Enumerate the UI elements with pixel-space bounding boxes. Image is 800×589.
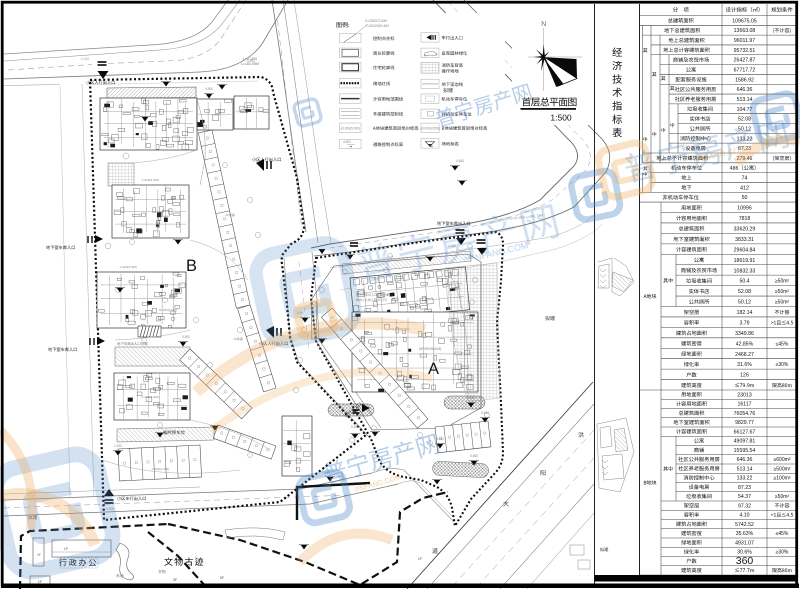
svg-text:5.480: 5.480	[481, 411, 489, 415]
svg-text:15595.54: 15595.54	[734, 448, 756, 454]
svg-text:≥600m²: ≥600m²	[774, 457, 791, 463]
svg-text:4.500: 4.500	[205, 87, 213, 91]
svg-text:52.08: 52.08	[738, 117, 751, 123]
svg-text:2468.27: 2468.27	[735, 352, 754, 358]
svg-text:1586.92: 1586.92	[735, 77, 754, 83]
svg-text:-1.050(3.450): -1.050(3.450)	[151, 467, 169, 471]
svg-text:5.480: 5.480	[467, 396, 475, 400]
svg-text:50: 50	[742, 195, 748, 201]
svg-text:≥500m²: ≥500m²	[774, 466, 791, 472]
svg-text:52.08: 52.08	[738, 289, 751, 295]
svg-text:-1.200(3.300): -1.200(3.300)	[141, 178, 159, 182]
svg-text:26427.87: 26427.87	[734, 58, 756, 64]
svg-text:≥50m²: ≥50m²	[775, 279, 789, 285]
svg-text:±0.000(5.000): ±0.000(5.000)	[340, 126, 360, 130]
svg-text:5.480: 5.480	[470, 454, 478, 458]
svg-text:7818: 7818	[739, 216, 751, 222]
svg-text:23013: 23013	[737, 392, 752, 398]
svg-text:1F商铺: 1F商铺	[233, 336, 243, 341]
svg-text:10996: 10996	[737, 206, 752, 212]
svg-text:±0.000(4.550): ±0.000(4.550)	[420, 126, 440, 130]
svg-text:Y=2842049.482: Y=2842049.482	[365, 24, 389, 28]
svg-text:±0.000(4.550): ±0.000(4.550)	[159, 308, 178, 312]
svg-text:412: 412	[740, 185, 749, 191]
svg-text:4.500: 4.500	[343, 140, 351, 144]
svg-text:33620.29: 33620.29	[734, 227, 756, 233]
svg-text:513.14: 513.14	[737, 97, 753, 103]
svg-text:513.14: 513.14	[737, 466, 753, 472]
svg-text:133.22: 133.22	[737, 476, 753, 482]
svg-text:74: 74	[742, 176, 748, 182]
svg-text:≥50m²: ≥50m²	[775, 300, 789, 306]
svg-text:X=298373.849: X=298373.849	[365, 19, 387, 23]
svg-text:50.12: 50.12	[738, 300, 751, 306]
svg-text:≥30%: ≥30%	[776, 550, 789, 556]
svg-text:76054.76: 76054.76	[734, 411, 756, 417]
svg-text:29604.84: 29604.84	[734, 247, 756, 253]
svg-text:5.300: 5.300	[351, 425, 359, 429]
svg-text:96011.97: 96011.97	[734, 38, 755, 44]
svg-text:95732.51: 95732.51	[734, 48, 756, 54]
svg-text:646.36: 646.36	[737, 457, 753, 463]
svg-text:50.4: 50.4	[739, 279, 749, 285]
svg-text:1.200: 1.200	[114, 444, 122, 448]
svg-text:35.63%: 35.63%	[736, 531, 754, 537]
svg-text:4.500: 4.500	[456, 159, 464, 163]
svg-text:5.300: 5.300	[182, 335, 190, 339]
svg-text:9829.77: 9829.77	[735, 420, 754, 426]
svg-text:≥50m²: ≥50m²	[775, 494, 789, 500]
svg-text:42.85%: 42.85%	[736, 341, 754, 347]
svg-text:126: 126	[740, 373, 749, 379]
svg-text:16117: 16117	[737, 402, 751, 408]
svg-text:97.32: 97.32	[738, 503, 751, 509]
svg-text:3.79: 3.79	[739, 320, 749, 326]
svg-text:1F商铺: 1F商铺	[225, 212, 235, 217]
svg-text:67717.72: 67717.72	[734, 68, 756, 74]
svg-text:182.14: 182.14	[737, 310, 753, 316]
svg-text:109675.05: 109675.05	[732, 18, 757, 24]
svg-text:3349.86: 3349.86	[735, 331, 754, 337]
svg-text:18619.91: 18619.91	[734, 258, 756, 264]
svg-text:≥30%: ≥30%	[776, 362, 789, 368]
svg-text:360: 360	[736, 555, 754, 567]
svg-text:646.36: 646.36	[737, 87, 753, 93]
svg-text:3833.31: 3833.31	[735, 237, 754, 243]
svg-text:31.6%: 31.6%	[737, 362, 752, 368]
svg-text:4.10: 4.10	[739, 513, 749, 519]
svg-text:4931.07: 4931.07	[735, 540, 754, 546]
svg-text:≤45%: ≤45%	[776, 341, 789, 347]
svg-text:5742.52: 5742.52	[735, 522, 754, 528]
svg-text:49097.81: 49097.81	[734, 439, 756, 445]
svg-text:4.500: 4.500	[247, 59, 255, 63]
svg-text:19F/59.05(64.5): 19F/59.05(64.5)	[419, 347, 442, 351]
svg-text:5.480: 5.480	[436, 437, 444, 441]
svg-text:13663.08: 13663.08	[734, 28, 756, 34]
svg-text:≤45%: ≤45%	[776, 531, 789, 537]
svg-text:10832.33: 10832.33	[734, 268, 756, 274]
svg-text:54.37: 54.37	[738, 494, 751, 500]
svg-text:4.410: 4.410	[81, 57, 90, 61]
svg-text:87.23: 87.23	[738, 485, 751, 491]
svg-text:≥100m²: ≥100m²	[774, 476, 791, 482]
svg-text:-1.200(3.300): -1.200(3.300)	[119, 265, 137, 269]
svg-text:≥50m²: ≥50m²	[775, 289, 789, 295]
svg-text:-1.200(3.300): -1.200(3.300)	[141, 395, 159, 399]
svg-text:66127.67: 66127.67	[734, 429, 756, 435]
